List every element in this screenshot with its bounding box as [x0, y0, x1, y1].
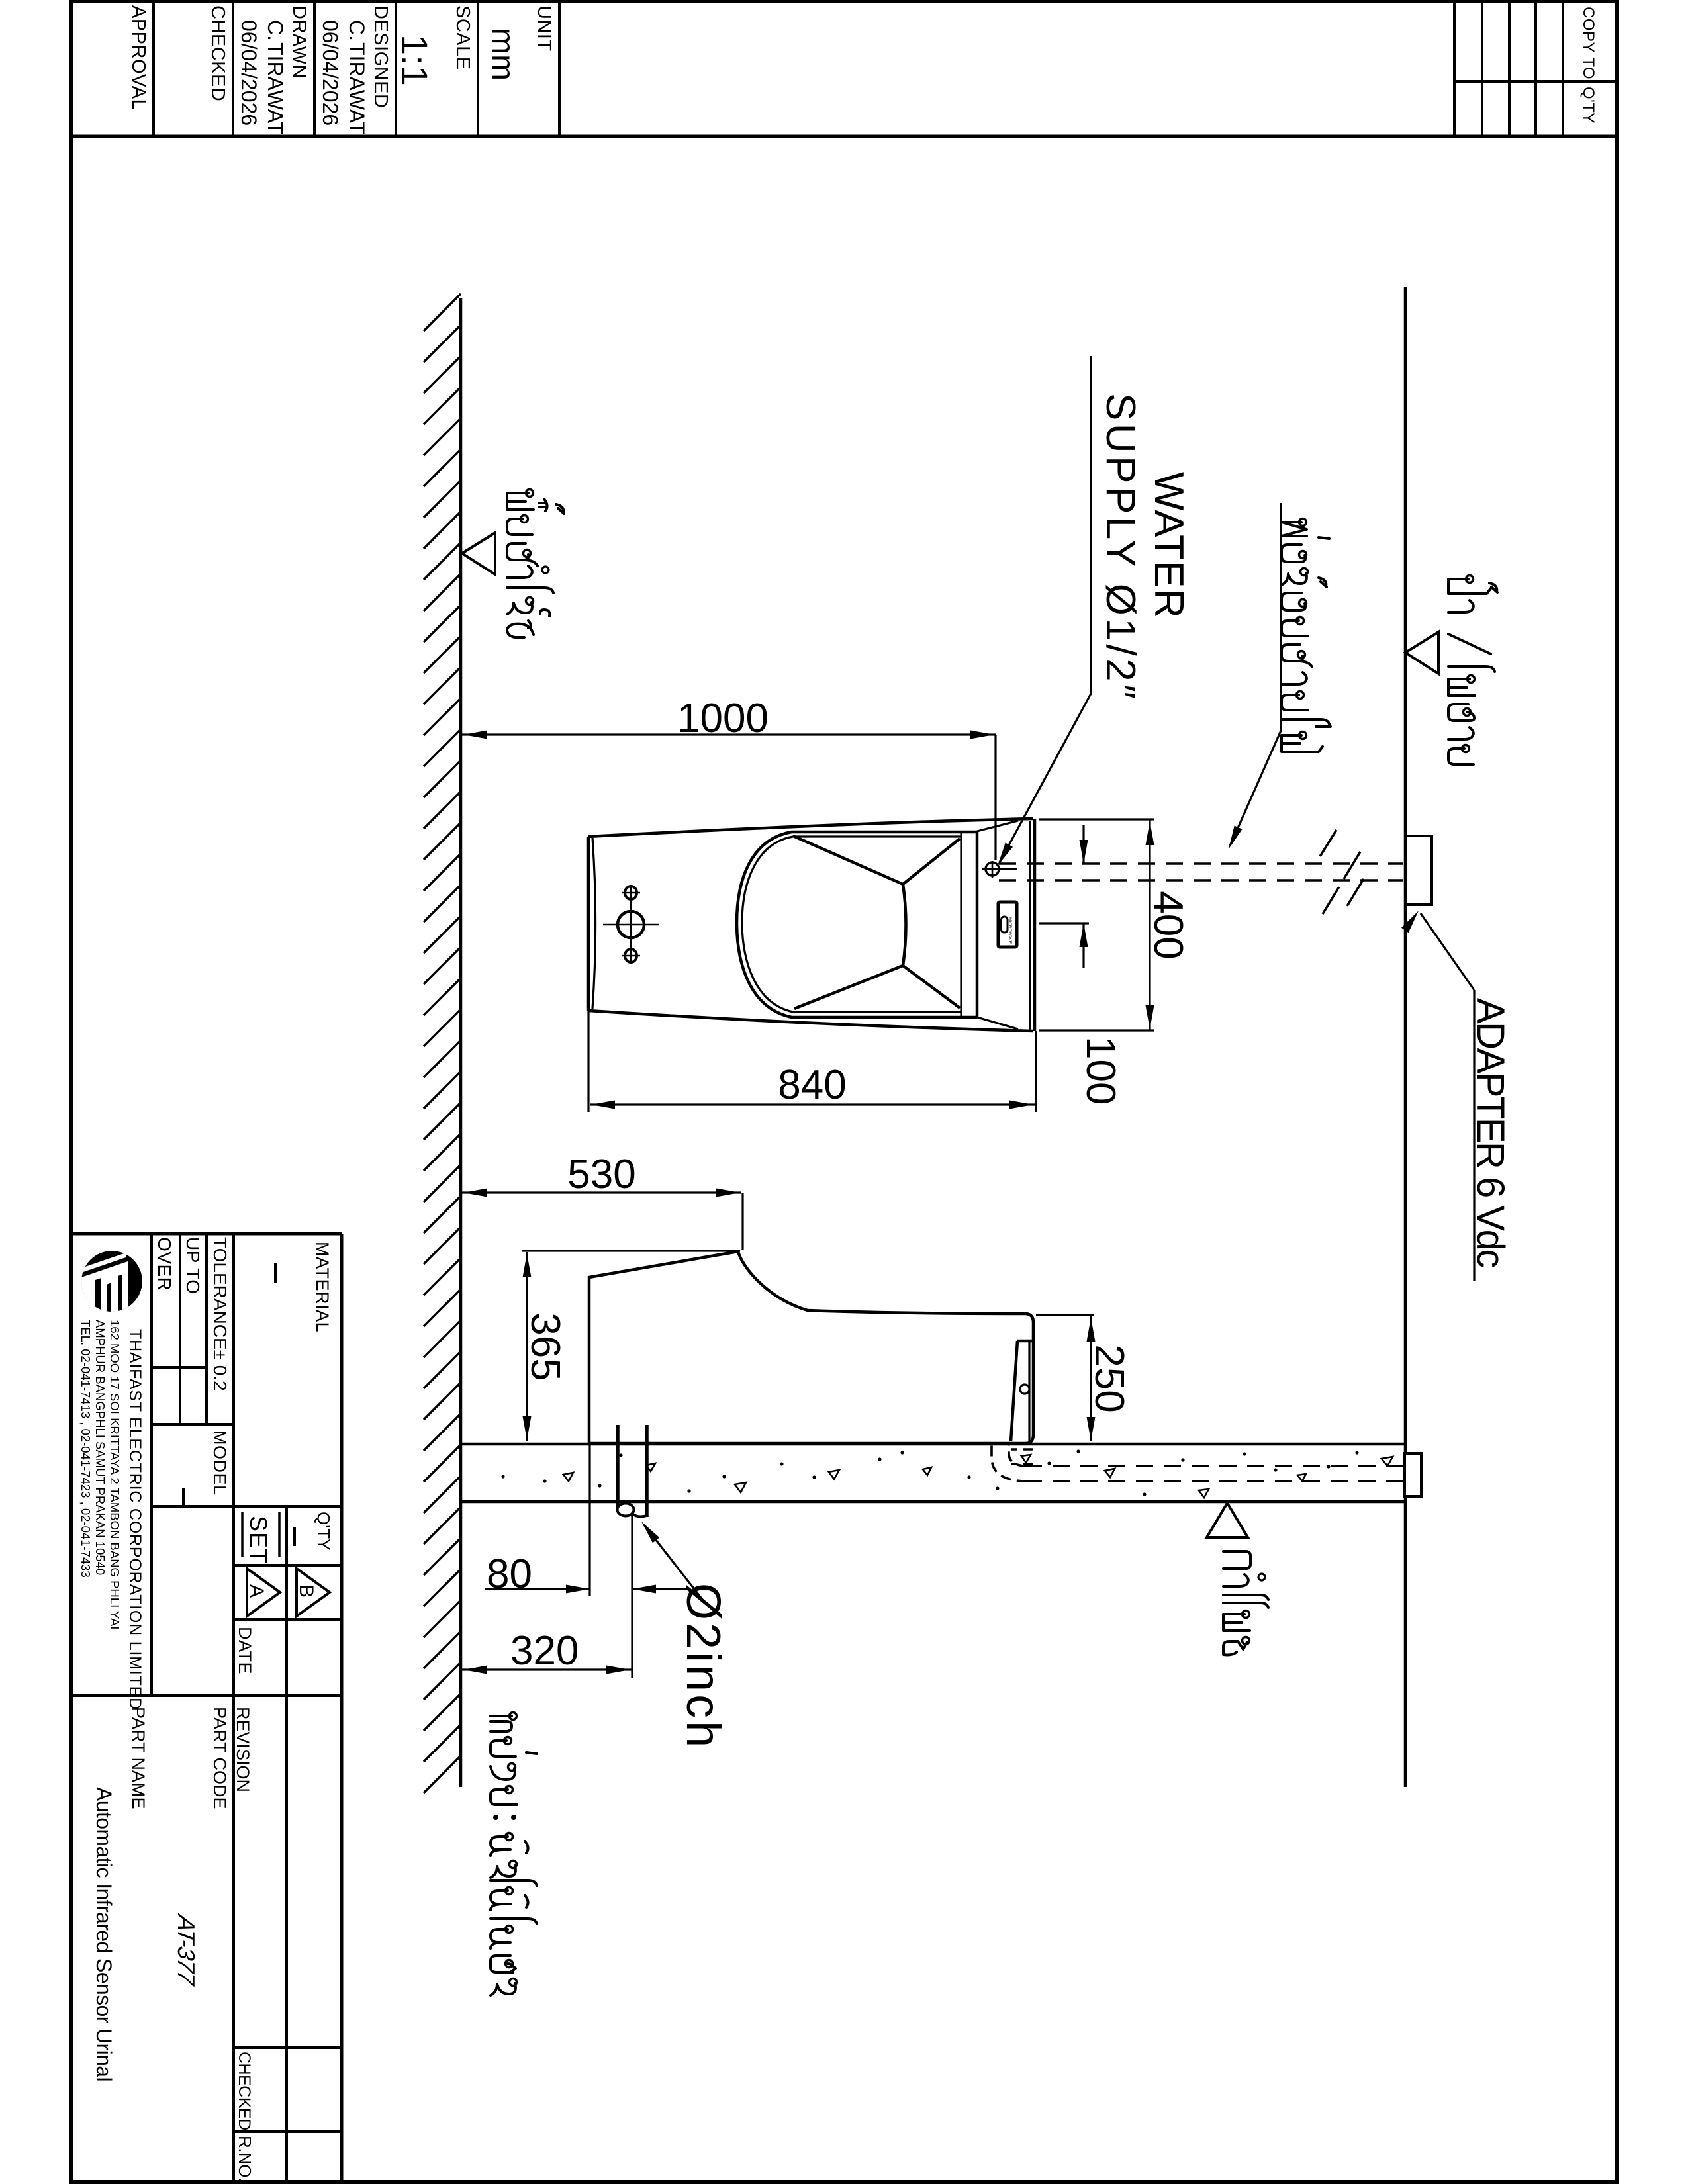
svg-text:MATERIAL: MATERIAL — [312, 1242, 332, 1332]
svg-text:DESIGNED: DESIGNED — [370, 5, 391, 108]
svg-text:MICROWAVE: MICROWAVE — [1008, 917, 1012, 944]
svg-text:TEL. 02-041-7413 , 02-041-742: TEL. 02-041-7413 , 02-041-7423 , 02-041-… — [79, 1320, 93, 1578]
svg-text:TOLERANCE± 0.2: TOLERANCE± 0.2 — [210, 1237, 230, 1391]
svg-text:A: A — [246, 1584, 267, 1598]
svg-text:R.NO.: R.NO. — [235, 2136, 255, 2182]
svg-text:APPROVAL: APPROVAL — [128, 5, 149, 110]
svg-text:80: 80 — [487, 1551, 532, 1597]
svg-text:530: 530 — [567, 1152, 635, 1197]
svg-text:ADAPTER 6 Vdc: ADAPTER 6 Vdc — [1469, 998, 1512, 1267]
svg-text:SET: SET — [245, 1516, 272, 1564]
svg-text:162 MOO 17 SOI KRITTAYA 2: 162 MOO 17 SOI KRITTAYA 2 TAMBON BANG PH… — [108, 1320, 122, 1629]
svg-text:06/04/2026: 06/04/2026 — [237, 20, 261, 126]
svg-text:REVISION: REVISION — [233, 1707, 253, 1792]
svg-text:Ø2inch: Ø2inch — [677, 1583, 729, 1750]
svg-text:MODEL: MODEL — [210, 1430, 230, 1496]
svg-text:CHECKED: CHECKED — [207, 5, 228, 101]
svg-text:UP TO: UP TO — [183, 1237, 203, 1295]
svg-text:OVER: OVER — [154, 1237, 175, 1291]
svg-text:365: 365 — [522, 1312, 568, 1381]
svg-text:PART NAME: PART NAME — [128, 1707, 148, 1809]
svg-text:C.: C. — [263, 20, 287, 41]
svg-text:PART CODE: PART CODE — [210, 1707, 230, 1809]
svg-text:250: 250 — [1086, 1344, 1132, 1412]
svg-text:400: 400 — [1145, 891, 1191, 959]
svg-text:UNIT: UNIT — [534, 5, 555, 52]
svg-text:COPY TO: COPY TO — [1579, 7, 1597, 79]
svg-text:SUPPLY Ø1/2″: SUPPLY Ø1/2″ — [1098, 393, 1143, 702]
svg-text:Q'TY: Q'TY — [314, 1512, 334, 1550]
svg-text:840: 840 — [778, 1062, 846, 1108]
svg-text:320: 320 — [510, 1628, 579, 1674]
svg-text:CHECKED: CHECKED — [235, 2052, 254, 2130]
svg-text:TIRAWAT: TIRAWAT — [345, 42, 369, 134]
svg-text:B: B — [295, 1584, 317, 1598]
svg-text:1000: 1000 — [677, 696, 769, 741]
svg-text:WATER: WATER — [1146, 472, 1192, 619]
svg-text:TIRAWAT: TIRAWAT — [263, 42, 287, 134]
svg-text:SCALE: SCALE — [452, 5, 473, 70]
svg-text:THAIFAST ELECTRIC CORPORATION: THAIFAST ELECTRIC CORPORATION LIMITED — [126, 1329, 144, 1710]
svg-text:DATE: DATE — [235, 1627, 255, 1674]
svg-text:mm: mm — [485, 28, 520, 81]
svg-text:AMPHUR BANGPHLI SAMUT PRAKA: AMPHUR BANGPHLI SAMUT PRAKAN 10540 — [93, 1320, 107, 1575]
svg-text:Automatic Infrared Sensor Urin: Automatic Infrared Sensor Urinal — [92, 1787, 116, 2081]
svg-text:100: 100 — [1078, 1036, 1123, 1105]
svg-text:AT-377: AT-377 — [173, 1912, 200, 1989]
svg-text:1:1: 1:1 — [394, 34, 436, 86]
svg-text:C.: C. — [345, 20, 369, 41]
svg-text:06/04/2026: 06/04/2026 — [318, 20, 342, 126]
svg-text:DRAWN: DRAWN — [289, 5, 310, 79]
svg-text:Q'TY: Q'TY — [1579, 87, 1597, 124]
